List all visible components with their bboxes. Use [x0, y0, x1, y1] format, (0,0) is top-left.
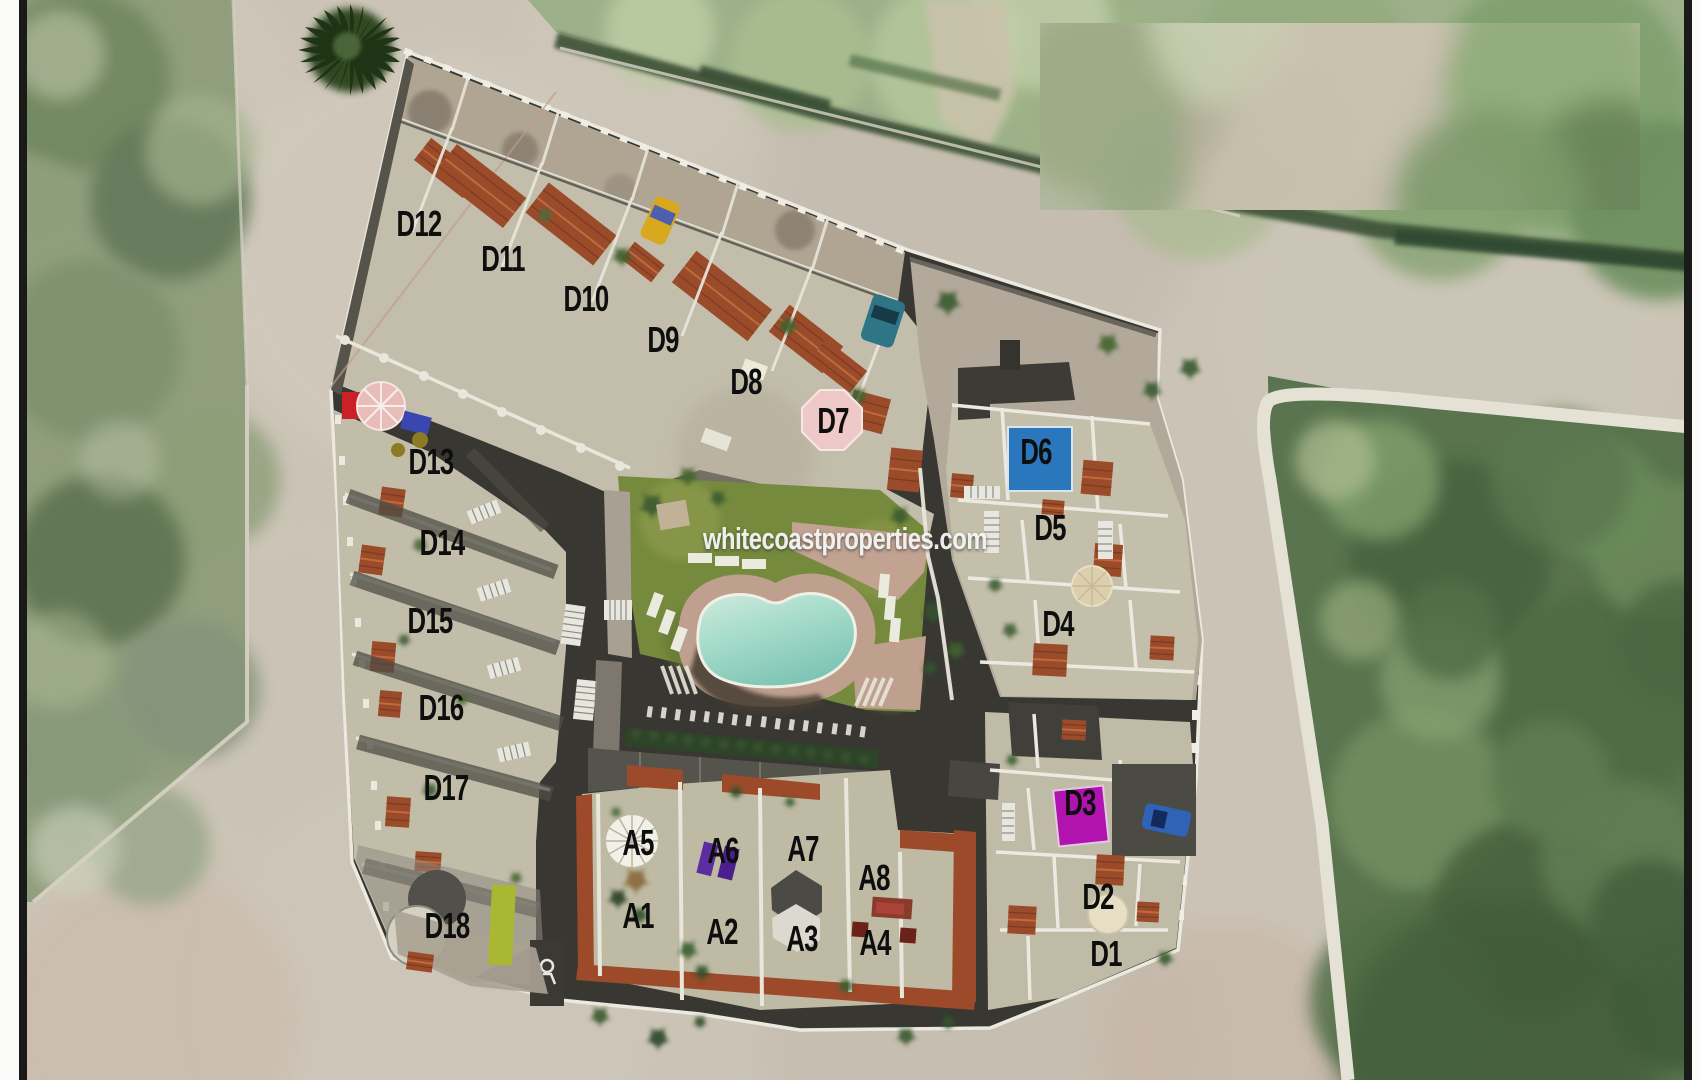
- svg-text:whitecoastproperties.com: whitecoastproperties.com: [702, 521, 987, 556]
- svg-text:A8: A8: [858, 858, 890, 898]
- svg-text:D10: D10: [564, 279, 609, 319]
- svg-text:D17: D17: [424, 768, 469, 808]
- svg-text:A1: A1: [622, 896, 654, 936]
- svg-text:A6: A6: [707, 831, 739, 871]
- svg-text:D11: D11: [481, 239, 525, 279]
- svg-text:D6: D6: [1020, 432, 1052, 472]
- svg-text:D5: D5: [1034, 508, 1066, 548]
- svg-text:D14: D14: [420, 523, 466, 563]
- svg-text:A7: A7: [787, 829, 819, 869]
- svg-text:A2: A2: [706, 912, 738, 952]
- svg-text:D12: D12: [397, 204, 442, 244]
- svg-text:D18: D18: [425, 906, 470, 946]
- svg-text:D16: D16: [419, 688, 464, 728]
- svg-text:D7: D7: [817, 401, 849, 441]
- svg-text:D13: D13: [409, 442, 454, 482]
- svg-text:D4: D4: [1042, 604, 1075, 644]
- svg-text:D1: D1: [1090, 934, 1122, 974]
- svg-text:D15: D15: [408, 601, 453, 641]
- svg-text:D9: D9: [647, 320, 679, 360]
- svg-text:D3: D3: [1064, 783, 1096, 823]
- svg-text:D2: D2: [1082, 877, 1114, 917]
- svg-text:A5: A5: [622, 823, 654, 863]
- svg-text:A4: A4: [859, 923, 892, 963]
- svg-text:A3: A3: [786, 919, 818, 959]
- svg-text:D8: D8: [730, 362, 762, 402]
